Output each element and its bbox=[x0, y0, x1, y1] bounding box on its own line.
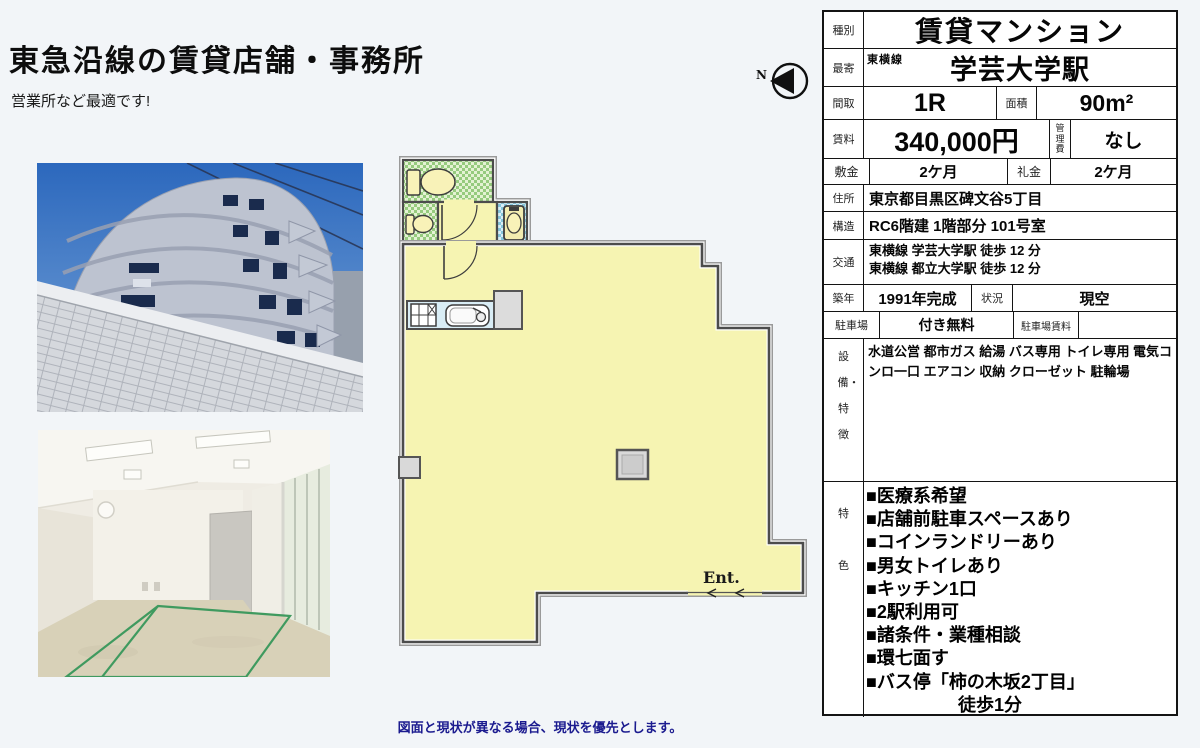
layout-value: 1R bbox=[864, 87, 997, 119]
row-deposit: 敷金 2ケ月 礼金 2ケ月 bbox=[824, 159, 1176, 185]
feature-item: ■2駅利用可 bbox=[866, 601, 1176, 624]
nearest-label: 最寄 bbox=[824, 49, 864, 86]
nearest-value-cell: 東横線 学芸大学駅 bbox=[864, 49, 1176, 86]
parking-fee-value bbox=[1079, 312, 1176, 338]
area-value: 90m² bbox=[1037, 87, 1176, 119]
access-label: 交通 bbox=[824, 240, 864, 284]
address-value: 東京都目黒区碑文谷5丁目 bbox=[864, 185, 1176, 211]
built-value: 1991年完成 bbox=[864, 285, 972, 311]
features-label: 特色 bbox=[824, 482, 864, 717]
feature-item: ■医療系希望 bbox=[866, 485, 1176, 508]
row-equipment: 設備・特徴 水道公営 都市ガス 給湯 バス専用 トイレ専用 電気コンロ一口 エア… bbox=[824, 339, 1176, 482]
key-money-label: 礼金 bbox=[1008, 159, 1051, 184]
flyer-page: 東急沿線の賃貸店舗・事務所 営業所など最適です! bbox=[0, 0, 1200, 748]
feature-item: ■キッチン1口 bbox=[866, 578, 1176, 601]
structure-label: 構造 bbox=[824, 212, 864, 239]
access-line-1: 東横線 学芸大学駅 徒歩 12 分 bbox=[869, 242, 1041, 260]
toilet-icon bbox=[407, 169, 455, 195]
key-money-value: 2ケ月 bbox=[1051, 159, 1176, 184]
equipment-value: 水道公営 都市ガス 給湯 バス専用 トイレ専用 電気コンロ一口 エアコン 収納 … bbox=[864, 339, 1176, 481]
deposit-value: 2ケ月 bbox=[870, 159, 1008, 184]
status-label: 状況 bbox=[972, 285, 1013, 311]
row-rent: 賃料 340,000円 管理費 なし bbox=[824, 120, 1176, 159]
deposit-label: 敷金 bbox=[824, 159, 870, 184]
rail-line: 東横線 bbox=[867, 51, 903, 67]
row-nearest: 最寄 東横線 学芸大学駅 bbox=[824, 49, 1176, 87]
feature-item: ■バス停「柿の木坂2丁目」 bbox=[866, 671, 1176, 694]
building-photo bbox=[37, 163, 363, 412]
parking-label: 駐車場 bbox=[824, 312, 880, 338]
equipment-label: 設備・特徴 bbox=[824, 339, 864, 481]
washbasin-icon bbox=[504, 206, 524, 240]
page-title: 東急沿線の賃貸店舗・事務所 bbox=[9, 36, 425, 80]
row-type: 種別 賃貸マンション bbox=[824, 12, 1176, 49]
features-list: ■医療系希望 ■店舗前駐車スペースあり ■コインランドリーあり ■男女トイレあり… bbox=[864, 482, 1176, 717]
area-label: 面積 bbox=[997, 87, 1037, 119]
row-parking: 駐車場 付き無料 駐車場賃料 bbox=[824, 312, 1176, 339]
footer-note: 図面と現状が異なる場合、現状を優先とします。 bbox=[370, 717, 710, 736]
window bbox=[283, 464, 330, 636]
interior-photo bbox=[38, 430, 330, 677]
access-value-cell: 東横線 学芸大学駅 徒歩 12 分 東横線 都立大学駅 徒歩 12 分 bbox=[864, 240, 1176, 284]
feature-item: ■諸条件・業種相談 bbox=[866, 624, 1176, 647]
type-label: 種別 bbox=[824, 12, 864, 48]
toilet-icon-small bbox=[406, 215, 433, 234]
left-pillar bbox=[399, 457, 420, 478]
row-address: 住所 東京都目黒区碑文谷5丁目 bbox=[824, 185, 1176, 212]
type-value: 賃貸マンション bbox=[864, 12, 1176, 48]
stove-icon bbox=[411, 304, 436, 326]
address-label: 住所 bbox=[824, 185, 864, 211]
structure-value: RC6階建 1階部分 101号室 bbox=[864, 212, 1176, 239]
row-built: 築年 1991年完成 状況 現空 bbox=[824, 285, 1176, 312]
row-layout: 間取 1R 面積 90m² bbox=[824, 87, 1176, 120]
feature-item: ■店舗前駐車スペースあり bbox=[866, 508, 1176, 531]
hallway bbox=[438, 202, 497, 243]
page-subtitle: 営業所など最適です! bbox=[11, 90, 150, 111]
layout-label: 間取 bbox=[824, 87, 864, 119]
sink-icon bbox=[446, 305, 489, 326]
refrigerator-space bbox=[494, 291, 522, 329]
rent-label: 賃料 bbox=[824, 120, 864, 158]
compass-n-label: N bbox=[756, 68, 767, 82]
rent-value: 340,000円 bbox=[864, 120, 1050, 158]
feature-item: 徒歩1分 bbox=[866, 694, 1176, 717]
compass-icon: N bbox=[750, 56, 816, 106]
parking-value: 付き無料 bbox=[880, 312, 1014, 338]
feature-item: ■コインランドリーあり bbox=[866, 531, 1176, 554]
ac-unit bbox=[133, 279, 151, 287]
row-access: 交通 東横線 学芸大学駅 徒歩 12 分 東横線 都立大学駅 徒歩 12 分 bbox=[824, 240, 1176, 285]
entrance-label: Ent. bbox=[703, 568, 740, 587]
wet-area-block bbox=[403, 160, 527, 243]
spec-table: 種別 賃貸マンション 最寄 東横線 学芸大学駅 間取 1R 面積 90m² 賃料… bbox=[822, 10, 1178, 716]
status-value: 現空 bbox=[1013, 285, 1176, 311]
mgmt-fee-value: なし bbox=[1071, 120, 1176, 158]
parking-fee-label: 駐車場賃料 bbox=[1014, 312, 1079, 338]
feature-item: ■環七面す bbox=[866, 647, 1176, 670]
row-structure: 構造 RC6階建 1階部分 101号室 bbox=[824, 212, 1176, 240]
kitchen-counter bbox=[407, 301, 494, 329]
mgmt-fee-label: 管理費 bbox=[1050, 120, 1071, 158]
nearest-station: 学芸大学駅 bbox=[950, 49, 1090, 86]
access-line-2: 東横線 都立大学駅 徒歩 12 分 bbox=[869, 260, 1041, 278]
row-features: 特色 ■医療系希望 ■店舗前駐車スペースあり ■コインランドリーあり ■男女トイ… bbox=[824, 482, 1176, 717]
built-label: 築年 bbox=[824, 285, 864, 311]
floorplan: Ent. bbox=[395, 150, 815, 665]
center-pillar bbox=[617, 450, 648, 479]
feature-item: ■男女トイレあり bbox=[866, 555, 1176, 578]
